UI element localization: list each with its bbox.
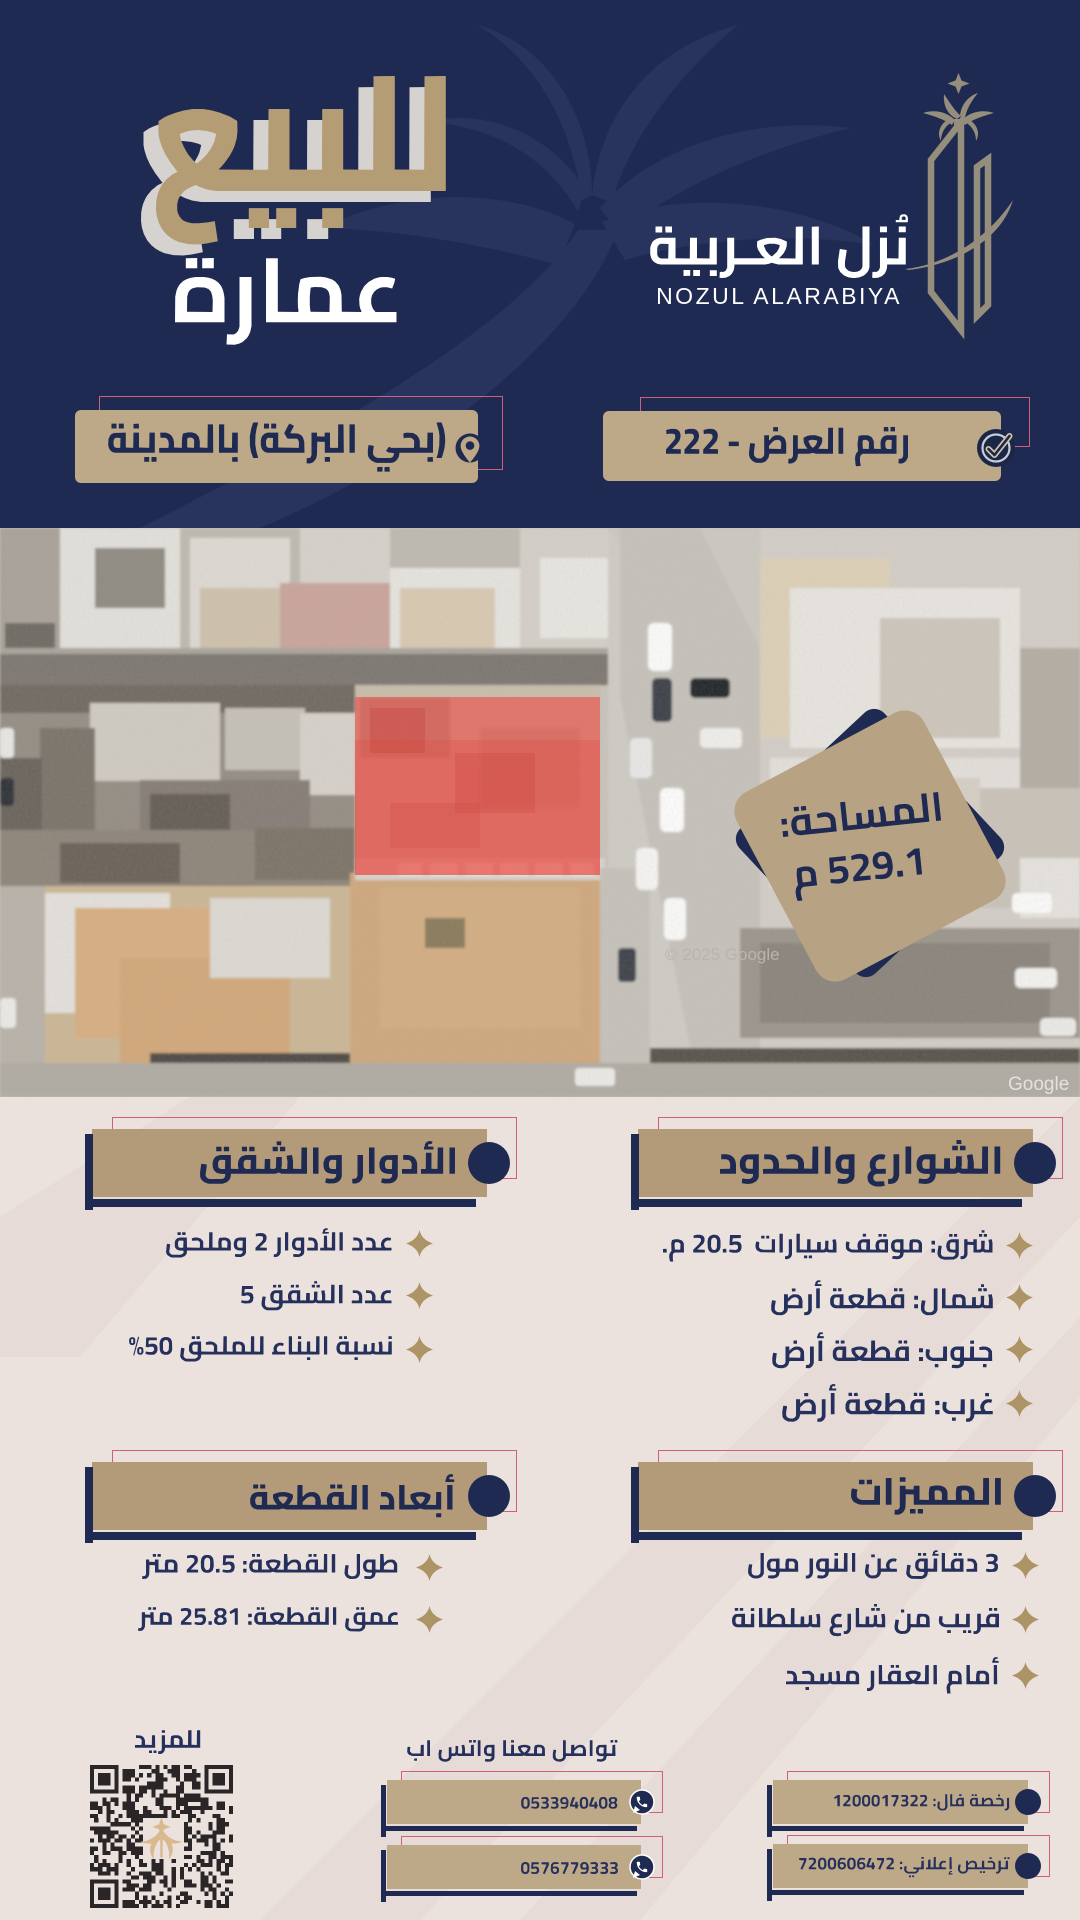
svg-text:© 2025 Google: © 2025 Google bbox=[665, 945, 780, 964]
svg-text:Google: Google bbox=[1008, 1074, 1069, 1095]
